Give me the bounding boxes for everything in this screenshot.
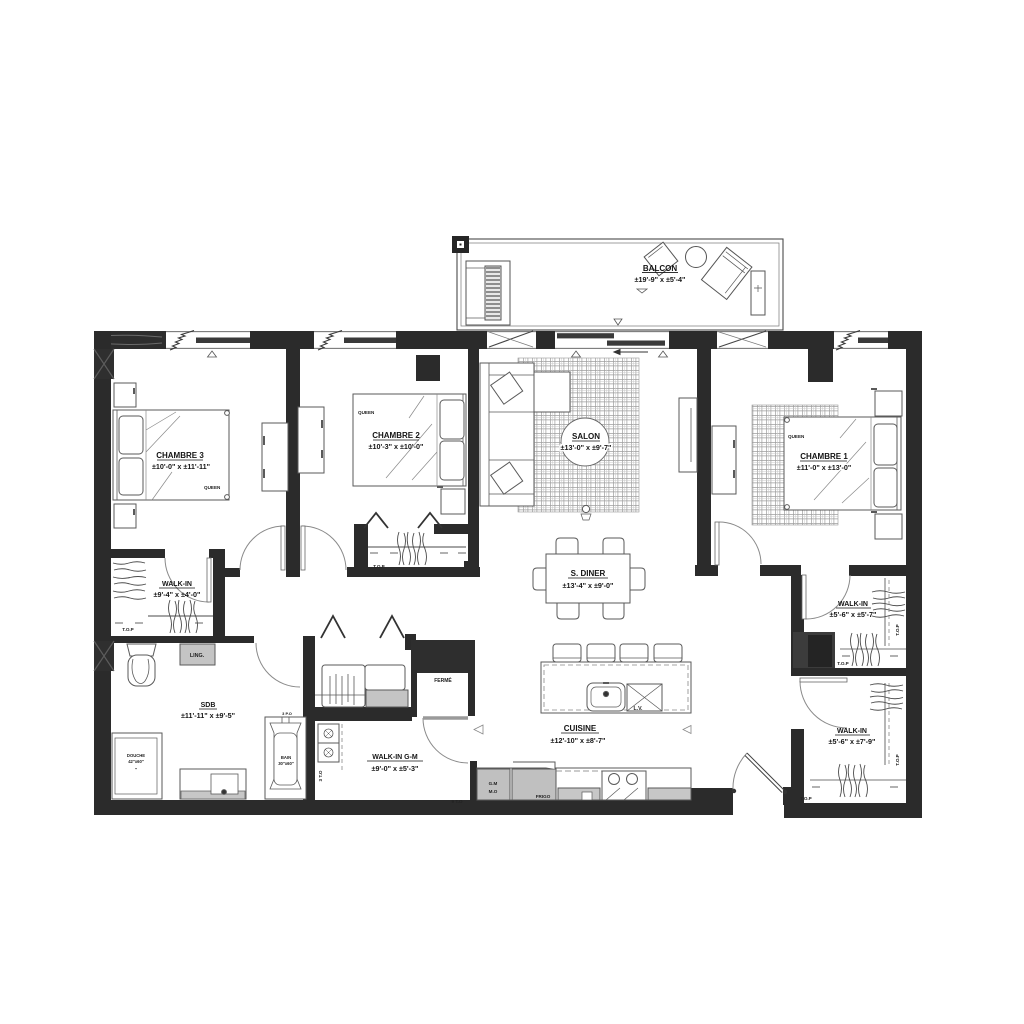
svg-text:3 T.O: 3 T.O [318, 770, 323, 781]
svg-text:T.O.P: T.O.P [122, 627, 134, 632]
svg-text:±11'-11" x ±9'-5": ±11'-11" x ±9'-5" [181, 711, 235, 720]
svg-text:±10'-0" x ±11'-11": ±10'-0" x ±11'-11" [152, 462, 210, 471]
svg-text:L.V.: L.V. [633, 706, 643, 712]
svg-text:±5'-6" x ±7'-9": ±5'-6" x ±7'-9" [829, 737, 876, 746]
svg-text:±13'-4" x ±9'-0": ±13'-4" x ±9'-0" [563, 581, 614, 590]
svg-text:CUISINE: CUISINE [564, 724, 597, 733]
svg-text:BALCON: BALCON [643, 264, 677, 273]
svg-text:±10'-3" x ±10'-0": ±10'-3" x ±10'-0" [369, 442, 424, 451]
svg-text:±5'-6" x ±5'-7": ±5'-6" x ±5'-7" [830, 610, 877, 619]
svg-text:S. DINER: S. DINER [571, 569, 606, 578]
svg-text:DOUCHE: DOUCHE [127, 753, 145, 758]
svg-text:±13'-0" x ±9'-7": ±13'-0" x ±9'-7" [561, 443, 612, 452]
svg-text:42"x60": 42"x60" [128, 759, 144, 764]
svg-text:CHAMBRE 1: CHAMBRE 1 [800, 452, 848, 461]
svg-text:30"x60": 30"x60" [278, 761, 294, 766]
svg-text:±9'-4" x ±4'-0": ±9'-4" x ±4'-0" [154, 590, 201, 599]
svg-text:WALK-IN: WALK-IN [837, 728, 867, 735]
svg-text:±19'-9" x ±5'-4": ±19'-9" x ±5'-4" [635, 275, 686, 284]
svg-text:WALK-IN: WALK-IN [838, 601, 868, 608]
svg-text:WALK-IN G-M: WALK-IN G-M [372, 754, 418, 761]
svg-text:QUEEN: QUEEN [358, 410, 375, 415]
svg-text:±9'-0" x ±5'-3": ±9'-0" x ±5'-3" [372, 764, 419, 773]
svg-text:±12'-10" x ±8'-7": ±12'-10" x ±8'-7" [551, 736, 606, 745]
svg-text:3 P.O: 3 P.O [282, 711, 292, 716]
svg-text:WALK-IN: WALK-IN [162, 581, 192, 588]
svg-text:SALON: SALON [572, 432, 600, 441]
svg-text:T.O.P: T.O.P [895, 624, 900, 636]
svg-text:BAIN: BAIN [281, 755, 291, 760]
svg-text:QUEEN: QUEEN [788, 434, 805, 439]
svg-text:T.O.P: T.O.P [895, 754, 900, 766]
svg-text:CHAMBRE 3: CHAMBRE 3 [156, 451, 204, 460]
svg-text:T.O.P: T.O.P [373, 564, 385, 569]
svg-text:FERMÉ: FERMÉ [434, 676, 452, 684]
svg-text:±11'-0" x ±13'-0": ±11'-0" x ±13'-0" [797, 463, 852, 472]
svg-text:T.O.P: T.O.P [800, 796, 812, 801]
svg-text:T.O.P: T.O.P [837, 661, 849, 666]
svg-text:SDB: SDB [201, 702, 216, 709]
svg-text:FRIGO: FRIGO [536, 794, 551, 799]
svg-text:LING.: LING. [190, 653, 205, 659]
svg-text:9 T.O: 9 T.O [452, 799, 463, 804]
svg-text:M.O: M.O [489, 789, 498, 794]
svg-text:CHAMBRE 2: CHAMBRE 2 [372, 431, 420, 440]
svg-text:QUEEN: QUEEN [204, 485, 221, 490]
svg-text:G.M: G.M [489, 781, 498, 786]
